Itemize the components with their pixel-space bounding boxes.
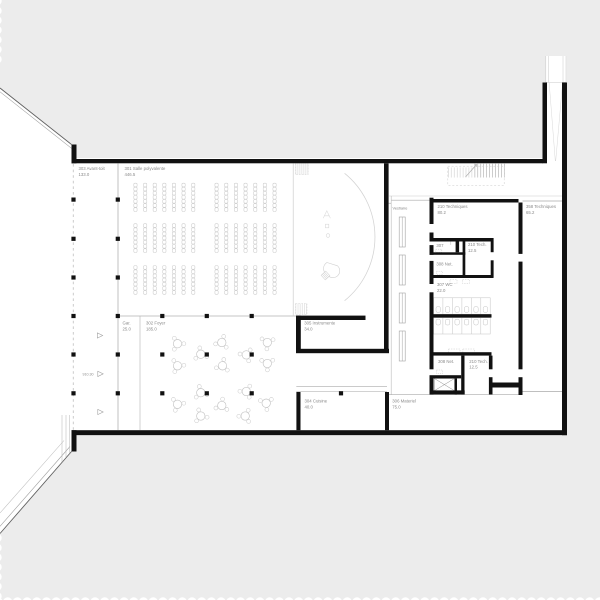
svg-text:306 Materiel: 306 Materiel: [392, 399, 416, 404]
svg-text:305 Instrumente: 305 Instrumente: [304, 321, 336, 326]
svg-text:185.0: 185.0: [146, 326, 157, 331]
svg-text:80.2: 80.2: [438, 210, 447, 215]
svg-text:302 Foyer: 302 Foyer: [146, 321, 166, 326]
svg-text:308 Net.: 308 Net.: [436, 262, 452, 267]
svg-text:301 Salle polyvalente: 301 Salle polyvalente: [125, 166, 166, 171]
svg-text:308 Net.: 308 Net.: [438, 359, 454, 364]
svg-text:25.0: 25.0: [123, 326, 132, 331]
svg-text:307 WC: 307 WC: [437, 282, 453, 287]
svg-text:210 Tech.: 210 Tech.: [468, 242, 487, 247]
svg-text:34.0: 34.0: [304, 326, 313, 331]
svg-text:Vestiaire: Vestiaire: [393, 206, 408, 211]
svg-text:Gar.: Gar.: [123, 321, 131, 326]
svg-text:12.5: 12.5: [469, 365, 478, 370]
svg-text:210 Tech.: 210 Tech.: [469, 359, 488, 364]
svg-text:65.2: 65.2: [526, 210, 535, 215]
svg-text:446.5: 446.5: [125, 172, 136, 177]
svg-text:210 Techniques: 210 Techniques: [438, 204, 468, 209]
svg-text:358 Techniques: 358 Techniques: [526, 204, 556, 209]
svg-text:40.0: 40.0: [305, 404, 314, 409]
svg-text:304 Cuisine: 304 Cuisine: [305, 399, 328, 404]
svg-text:75.0: 75.0: [392, 404, 401, 409]
svg-text:133.0: 133.0: [79, 172, 90, 177]
svg-text:303 Avant-toit: 303 Avant-toit: [79, 166, 106, 171]
svg-text:22.0: 22.0: [437, 288, 446, 293]
svg-text:12.5: 12.5: [468, 248, 477, 253]
svg-text:307: 307: [436, 243, 444, 248]
svg-text:910.30: 910.30: [83, 372, 94, 376]
